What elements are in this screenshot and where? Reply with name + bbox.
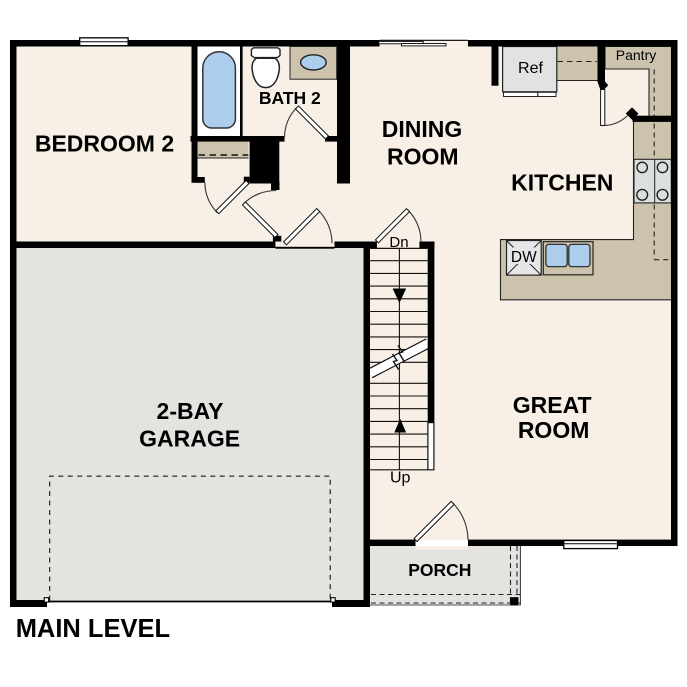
svg-text:GARAGE: GARAGE	[139, 426, 240, 452]
svg-text:Up: Up	[390, 470, 411, 487]
svg-text:BATH 2: BATH 2	[259, 88, 321, 108]
svg-text:2-BAY: 2-BAY	[157, 398, 224, 424]
svg-text:BEDROOM 2: BEDROOM 2	[35, 131, 174, 157]
svg-text:MAIN LEVEL: MAIN LEVEL	[16, 615, 170, 643]
svg-text:PORCH: PORCH	[408, 560, 471, 580]
svg-text:Dn: Dn	[389, 234, 408, 251]
svg-text:ROOM: ROOM	[387, 143, 459, 169]
svg-text:DINING: DINING	[382, 116, 463, 142]
svg-text:GREAT: GREAT	[513, 392, 592, 418]
svg-text:ROOM: ROOM	[518, 417, 590, 443]
svg-text:DW: DW	[511, 249, 537, 266]
svg-text:Pantry: Pantry	[616, 47, 656, 63]
svg-text:KITCHEN: KITCHEN	[511, 169, 613, 195]
svg-text:Ref: Ref	[518, 60, 543, 77]
